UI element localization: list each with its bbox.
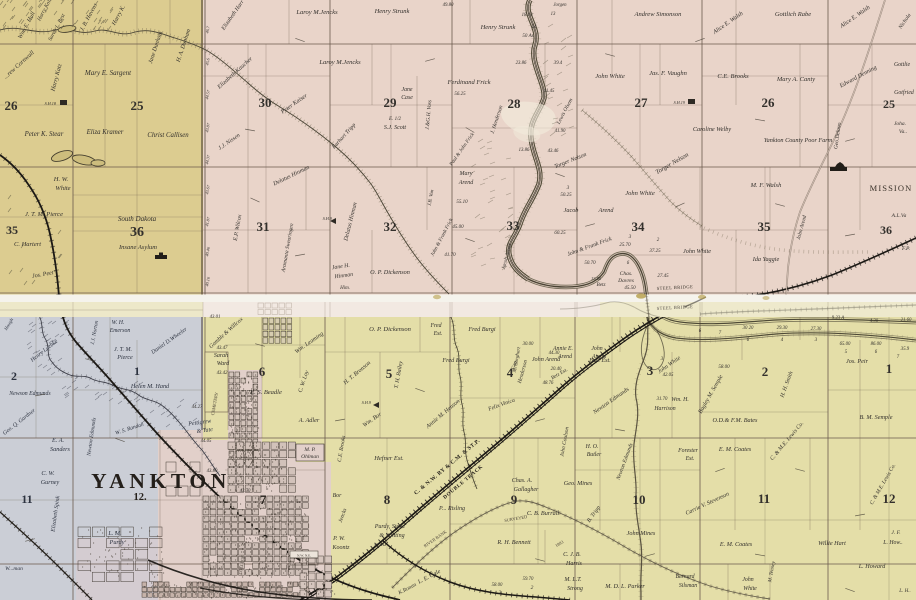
svg-text:Arend: Arend <box>458 180 474 186</box>
svg-text:31: 31 <box>257 219 270 234</box>
svg-text:43.42: 43.42 <box>217 371 228 376</box>
svg-text:26: 26 <box>5 98 19 113</box>
svg-text:et.al.: et.al. <box>375 542 386 548</box>
svg-text:21.60: 21.60 <box>901 318 912 323</box>
svg-text:13 50: 13 50 <box>591 276 602 281</box>
svg-text:8: 8 <box>384 492 391 507</box>
svg-text:Jacob: Jacob <box>564 207 579 214</box>
svg-text:Arend: Arend <box>591 354 606 360</box>
svg-text:Betz: Betz <box>597 282 606 288</box>
svg-text:P... Risling: P... Risling <box>438 506 465 512</box>
svg-text:1: 1 <box>886 361 893 376</box>
svg-text:Fred Burgi: Fred Burgi <box>441 357 469 364</box>
svg-text:3: 3 <box>498 590 502 596</box>
svg-text:Fred: Fred <box>429 323 441 329</box>
svg-text:65.00: 65.00 <box>840 342 851 347</box>
svg-text:13: 13 <box>551 12 556 17</box>
svg-text:Laroy M.Jencks: Laroy M.Jencks <box>318 59 361 66</box>
svg-text:Yankton County Poor Farm: Yankton County Poor Farm <box>764 137 833 144</box>
svg-text:36: 36 <box>130 225 144 240</box>
svg-text:Newson Edmunds: Newson Edmunds <box>8 391 51 397</box>
svg-text:27.30: 27.30 <box>811 327 822 332</box>
svg-text:J. T. M. Pierce: J. T. M. Pierce <box>25 211 63 218</box>
svg-text:Harris: Harris <box>565 561 583 567</box>
svg-text:L. How..: L. How.. <box>882 540 903 546</box>
svg-text:S.H.9: S.H.9 <box>362 400 372 405</box>
svg-text:S.J. Scott: S.J. Scott <box>384 125 406 131</box>
svg-text:H. W.: H. W. <box>53 176 69 183</box>
svg-text:Gallagher: Gallagher <box>514 487 539 493</box>
svg-text:O. P. Dickenson: O. P. Dickenson <box>370 269 410 276</box>
svg-text:48.76: 48.76 <box>543 381 554 386</box>
svg-text:Forester: Forester <box>677 448 698 454</box>
svg-text:R. H. Bennett: R. H. Bennett <box>496 539 531 546</box>
svg-text:35: 35 <box>6 223 18 237</box>
svg-text:A. Adler: A. Adler <box>298 417 320 424</box>
svg-text:33: 33 <box>507 218 521 233</box>
svg-text:9.23 A: 9.23 A <box>832 316 845 321</box>
svg-text:Mary E. Sargent: Mary E. Sargent <box>84 69 132 77</box>
svg-text:Butler: Butler <box>587 452 602 458</box>
svg-text:14: 14 <box>532 25 537 30</box>
svg-text:E. A.: E. A. <box>51 437 64 444</box>
svg-text:White: White <box>55 185 70 192</box>
svg-text:49.80: 49.80 <box>443 3 454 8</box>
svg-text:25: 25 <box>131 98 145 113</box>
svg-text:Bor: Bor <box>333 493 342 499</box>
svg-text:Silsman: Silsman <box>679 583 697 589</box>
svg-text:20.40: 20.40 <box>551 367 562 372</box>
svg-text:39.4: 39.4 <box>554 61 563 66</box>
svg-text:John Mines: John Mines <box>627 530 656 537</box>
svg-text:L. H..: L. H.. <box>898 589 910 594</box>
svg-text:Laroy M.Jencks: Laroy M.Jencks <box>295 9 338 16</box>
svg-text:O.D.& F.M. Bates: O.D.& F.M. Bates <box>713 417 759 424</box>
svg-text:J. T. M.: J. T. M. <box>114 347 132 353</box>
svg-text:26: 26 <box>762 95 776 110</box>
svg-text:44.30: 44.30 <box>549 351 560 356</box>
svg-text:P. W.: P. W. <box>332 536 345 542</box>
svg-text:13.86: 13.86 <box>519 148 530 153</box>
svg-text:John White: John White <box>595 73 625 80</box>
svg-text:Him.: Him. <box>339 286 350 291</box>
svg-text:Henry Strunk: Henry Strunk <box>374 8 410 15</box>
svg-text:Willie Hart: Willie Hart <box>818 540 846 547</box>
svg-text:12.: 12. <box>133 492 147 503</box>
svg-text:Fred Burgi: Fred Burgi <box>467 326 495 333</box>
svg-text:A.L.Va: A.L.Va <box>891 213 907 219</box>
svg-text:Davres: Davres <box>617 278 634 284</box>
svg-text:34: 34 <box>632 219 646 234</box>
svg-text:Wm. H.: Wm. H. <box>671 397 689 403</box>
svg-text:M. F. Walsh: M. F. Walsh <box>750 182 782 189</box>
svg-text:9: 9 <box>511 492 518 507</box>
svg-text:50.25: 50.25 <box>560 193 572 198</box>
svg-text:44.05: 44.05 <box>201 439 212 444</box>
svg-text:Est.: Est. <box>433 331 443 337</box>
svg-text:John: John <box>742 577 753 583</box>
svg-text:41.70: 41.70 <box>444 253 456 258</box>
svg-text:Peter K. Stear: Peter K. Stear <box>24 131 64 138</box>
svg-text:Insane Asylum: Insane Asylum <box>118 244 157 251</box>
svg-text:MISSION: MISSION <box>870 183 913 193</box>
svg-text:18.10: 18.10 <box>522 13 533 18</box>
svg-text:59.70: 59.70 <box>523 577 534 582</box>
svg-text:Est.: Est. <box>685 456 695 462</box>
svg-text:44.27: 44.27 <box>192 405 203 410</box>
svg-text:35: 35 <box>758 219 772 234</box>
svg-text:Joha.: Joha. <box>894 121 906 127</box>
svg-text:S.H.19: S.H.19 <box>674 100 686 105</box>
svg-text:Case: Case <box>401 95 413 101</box>
svg-text:11: 11 <box>758 491 770 506</box>
svg-text:Pierce: Pierce <box>116 355 133 361</box>
svg-text:Andrew Simonson: Andrew Simonson <box>634 11 682 18</box>
svg-text:M. L.T.: M. L.T. <box>563 577 581 583</box>
svg-text:L. Howard: L. Howard <box>858 563 886 570</box>
svg-text:Geo. Mines: Geo. Mines <box>564 480 593 487</box>
svg-text:2: 2 <box>11 369 17 383</box>
svg-text:L. M.: L. M. <box>107 530 121 537</box>
svg-text:55.10: 55.10 <box>456 200 468 205</box>
svg-text:W. H.: W. H. <box>112 320 125 326</box>
svg-text:41.90: 41.90 <box>555 129 566 134</box>
svg-text:John White: John White <box>683 248 711 255</box>
svg-text:58.00: 58.00 <box>718 365 730 370</box>
svg-text:Caroline Welby: Caroline Welby <box>693 126 731 133</box>
svg-text:58.00: 58.00 <box>492 583 503 588</box>
svg-text:& Whiting: & Whiting <box>379 533 404 539</box>
svg-text:25: 25 <box>883 97 895 111</box>
svg-text:Christ Callisen: Christ Callisen <box>147 132 189 139</box>
svg-text:43.46: 43.46 <box>548 149 559 154</box>
svg-text:Ida Yaggie: Ida Yaggie <box>752 256 780 263</box>
svg-text:43.01: 43.01 <box>210 315 221 320</box>
svg-text:J. F.: J. F. <box>891 530 900 536</box>
svg-text:27: 27 <box>635 95 649 110</box>
svg-text:M. D. L. Parker: M. D. L. Parker <box>604 583 645 590</box>
svg-text:C. J. B.: C. J. B. <box>563 552 581 558</box>
svg-text:2: 2 <box>531 585 534 591</box>
svg-text:36: 36 <box>880 223 892 237</box>
svg-text:John: John <box>591 346 602 352</box>
svg-text:Gurney: Gurney <box>41 479 60 486</box>
svg-text:Ohlman: Ohlman <box>301 454 319 460</box>
svg-text:Purdy, Stone: Purdy, Stone <box>374 524 406 530</box>
svg-text:37.25: 37.25 <box>649 249 661 254</box>
svg-text:Eliza Kramer: Eliza Kramer <box>86 129 124 136</box>
svg-text:2: 2 <box>762 364 769 379</box>
svg-text:S.H.9: S.H.9 <box>323 216 333 221</box>
svg-text:C.E. Brooks: C.E. Brooks <box>717 73 749 80</box>
svg-text:43.70: 43.70 <box>240 489 251 494</box>
svg-text:E. 1/2: E. 1/2 <box>388 117 401 122</box>
svg-text:60.25: 60.25 <box>554 231 566 236</box>
svg-text:Jorgen: Jorgen <box>553 3 567 8</box>
svg-text:56.25: 56.25 <box>454 92 466 97</box>
svg-text:3: 3 <box>647 363 654 378</box>
svg-text:Helen M. Hand: Helen M. Hand <box>130 383 170 390</box>
svg-text:35.9: 35.9 <box>901 347 910 352</box>
svg-text:C. B. Burrall: C. B. Burrall <box>527 510 560 517</box>
svg-text:30: 30 <box>259 95 272 110</box>
svg-text:B. M. Semple: B. M. Semple <box>860 414 893 421</box>
svg-text:5: 5 <box>386 366 393 381</box>
svg-text:61.45: 61.45 <box>544 89 555 94</box>
svg-text:25.70: 25.70 <box>619 243 631 248</box>
svg-text:29: 29 <box>384 95 398 110</box>
svg-text:Gottlie: Gottlie <box>894 62 911 68</box>
svg-text:Jane: Jane <box>402 87 413 93</box>
svg-text:John Arend: John Arend <box>532 356 561 363</box>
svg-text:C. Hartert: C. Hartert <box>14 241 41 248</box>
svg-text:H. O.: H. O. <box>585 444 599 450</box>
svg-text:White: White <box>743 586 757 592</box>
svg-text:Harrison: Harrison <box>653 406 675 412</box>
svg-text:Chas.: Chas. <box>620 271 633 277</box>
svg-text:86.00: 86.00 <box>871 342 882 347</box>
svg-text:W...man: W...man <box>5 566 23 572</box>
svg-text:Sarah: Sarah <box>214 353 228 359</box>
svg-text:23.86: 23.86 <box>516 61 527 66</box>
svg-text:Purdy: Purdy <box>109 539 125 546</box>
svg-text:E. S. Beadle: E. S. Beadle <box>249 389 282 396</box>
svg-text:Ward: Ward <box>217 361 231 367</box>
svg-text:Hefner Est.: Hefner Est. <box>373 455 404 462</box>
svg-text:Bernard: Bernard <box>675 574 694 580</box>
svg-text:1: 1 <box>134 364 140 378</box>
svg-text:11: 11 <box>21 492 32 506</box>
svg-text:Arend: Arend <box>598 207 615 214</box>
svg-text:Emerson: Emerson <box>109 328 131 334</box>
svg-text:29.30: 29.30 <box>777 326 788 331</box>
svg-text:E. M. Coates: E. M. Coates <box>718 446 752 453</box>
svg-text:Sanders: Sanders <box>50 446 71 453</box>
svg-text:Chas. A.: Chas. A. <box>512 478 532 484</box>
svg-text:Jas. F. Vaughn: Jas. F. Vaughn <box>649 70 687 77</box>
svg-text:45.00: 45.00 <box>452 225 464 230</box>
svg-text:Gottlich Rabe: Gottlich Rabe <box>775 11 811 18</box>
svg-text:42.05: 42.05 <box>663 373 674 378</box>
svg-text:4.30: 4.30 <box>870 319 879 324</box>
svg-text:30 20: 30 20 <box>743 326 754 331</box>
svg-text:Mary: Mary <box>459 171 473 177</box>
svg-text:30.00: 30.00 <box>523 342 534 347</box>
svg-text:50 As: 50 As <box>522 34 533 39</box>
svg-text:32: 32 <box>384 219 397 234</box>
svg-text:10: 10 <box>633 492 646 507</box>
svg-text:N.W. N.E.: N.W. N.E. <box>297 554 311 558</box>
svg-text:John White: John White <box>625 190 655 197</box>
svg-text:Strong: Strong <box>567 586 583 592</box>
svg-text:South Dakota: South Dakota <box>118 215 157 223</box>
svg-text:45.50: 45.50 <box>624 286 636 291</box>
svg-text:Koontz: Koontz <box>331 545 350 551</box>
svg-text:43.47: 43.47 <box>217 346 228 351</box>
svg-text:Jos. Peir: Jos. Peir <box>846 358 869 365</box>
svg-text:E. M. Coates: E. M. Coates <box>719 541 753 548</box>
svg-text:Va..: Va.. <box>899 129 907 135</box>
svg-text:28: 28 <box>508 96 522 111</box>
svg-text:7: 7 <box>260 492 267 507</box>
svg-text:M. P.: M. P. <box>303 447 315 453</box>
svg-text:50.70: 50.70 <box>584 261 596 266</box>
svg-text:Mary A. Canty: Mary A. Canty <box>776 76 815 83</box>
svg-text:31.70: 31.70 <box>657 397 668 402</box>
svg-text:Gotfried: Gotfried <box>894 89 914 96</box>
svg-text:6: 6 <box>259 364 266 379</box>
svg-text:12: 12 <box>883 491 896 506</box>
svg-text:Henry Strunk: Henry Strunk <box>480 24 516 31</box>
svg-text:C. W.: C. W. <box>41 470 54 477</box>
svg-text:F.P.: F.P. <box>901 246 910 252</box>
svg-text:27.45: 27.45 <box>657 274 669 279</box>
svg-text:43.80: 43.80 <box>207 469 218 474</box>
svg-text:O. P. Dickenson: O. P. Dickenson <box>369 326 411 333</box>
svg-text:S.H.18: S.H.18 <box>45 101 57 106</box>
svg-text:Ferdinand Frick: Ferdinand Frick <box>447 79 491 86</box>
